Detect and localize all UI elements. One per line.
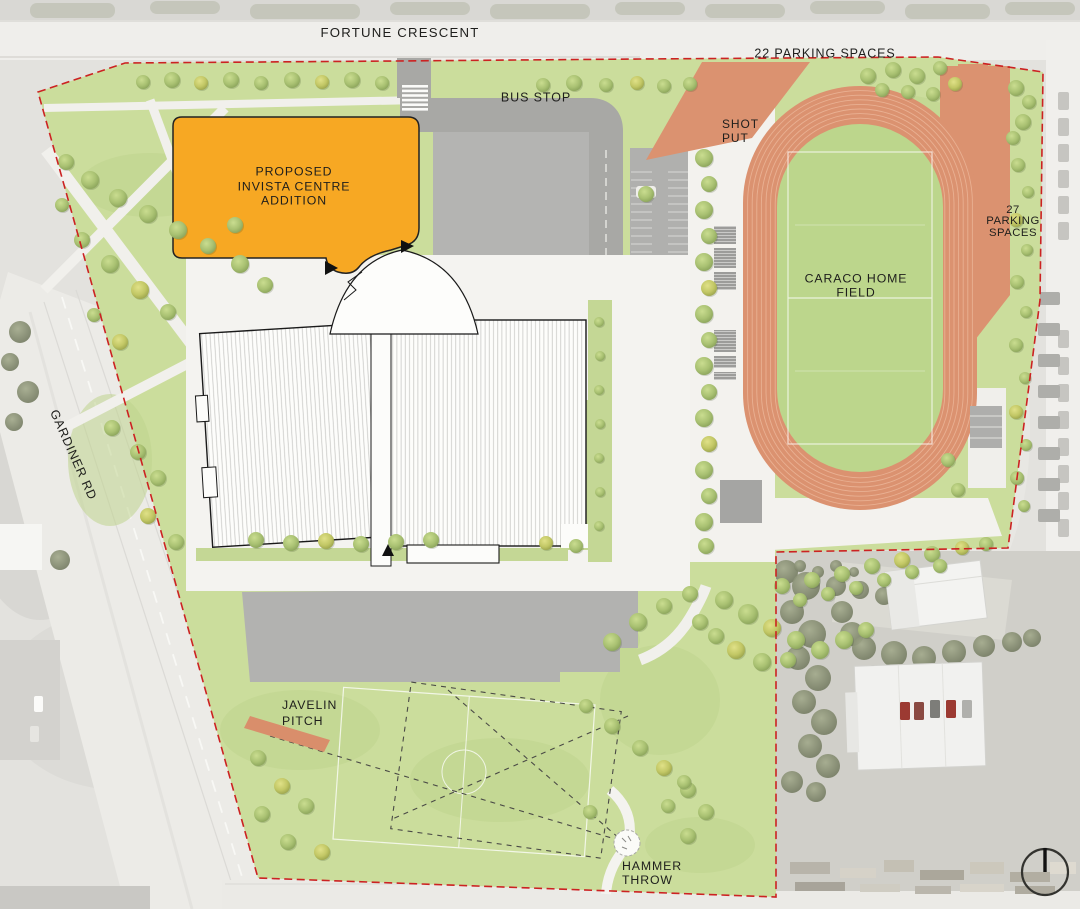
- building-label-proposed-addition: PROPOSED INVISTA CENTRE ADDITION: [238, 164, 351, 208]
- equipment-pad: [720, 480, 762, 523]
- parking-count-label-north: 22 PARKING SPACES: [754, 47, 895, 62]
- field-label-hammer-throw: HAMMER THROW: [622, 860, 682, 887]
- parking-count-label-east: 27 PARKING SPACES: [986, 205, 1040, 239]
- fortune-crescent-road: [0, 20, 1080, 60]
- hammer-throw-circle: [614, 830, 640, 856]
- site-plan-canvas: [0, 0, 1080, 909]
- field-label-caraco-home-field: CARACO HOME FIELD: [805, 273, 908, 300]
- street-label-fortune-crescent: FORTUNE CRESCENT: [321, 25, 480, 41]
- field-label-shot-put: SHOT PUT: [722, 118, 759, 145]
- field-label-javelin-pitch: JAVELIN PITCH: [282, 698, 337, 729]
- site-plan-map: FORTUNE CRESCENT GARDINER RD BUS STOP 22…: [0, 0, 1080, 909]
- invista-centre-building-east: [389, 320, 588, 563]
- bus-stop-label: BUS STOP: [501, 91, 571, 106]
- east-parking-strip: [970, 406, 1002, 448]
- south-parking-lot: [242, 588, 638, 682]
- invista-centre-building-west: [192, 323, 389, 548]
